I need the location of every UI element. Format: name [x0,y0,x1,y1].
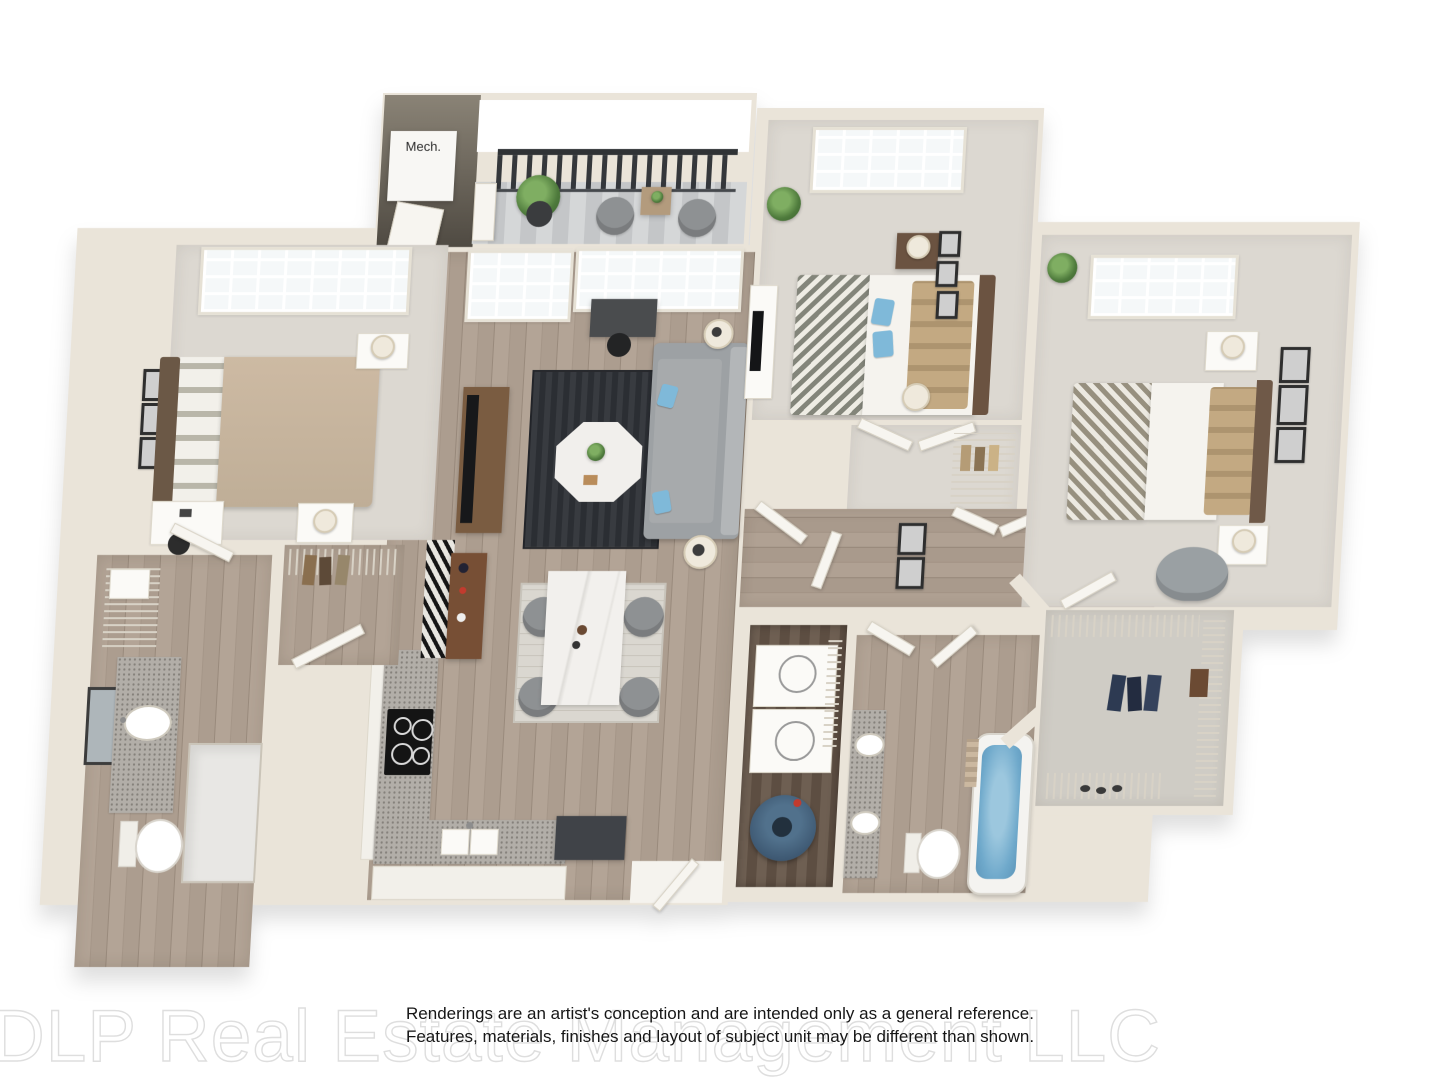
coffee-table-tray [583,475,598,485]
hanging-clothes-icon [319,557,331,586]
bedroom3-bed-blanket [1066,383,1152,520]
disclaimer-line1: Renderings are an artist's conception an… [0,1003,1440,1026]
kitchen-sink-basin [440,829,469,855]
hanging-clothes-icon [960,445,971,471]
closet-wire-shelf [1046,773,1165,799]
dining-table [541,571,626,705]
balcony-door [472,183,497,241]
hanging-clothes-icon [1127,676,1142,711]
decor-icon [179,509,191,517]
wall-art-frame [897,523,927,555]
accent-chair [1155,547,1230,601]
master-bed-duvet [216,357,380,507]
storage-item-icon [1189,669,1209,697]
wall-art-frame [1274,427,1306,463]
throw-pillow [872,330,893,358]
entry-console [554,816,626,860]
bathtub-water [975,745,1022,879]
closet-wire-shelf [950,433,1016,511]
wall-art-frame [1279,347,1311,383]
wall-art-frame [895,557,925,589]
bedroom2-bed-blanket [790,275,870,415]
desk [589,299,657,337]
storage-bin [109,569,151,599]
wall-art-frame [935,261,958,287]
floor-plan: Mech. [29,85,1375,915]
bedroom2-window [809,127,967,193]
wall-art-frame [938,231,961,257]
shower [181,743,263,883]
balcony-open-sky [477,100,752,152]
closet-wire-shelf [1051,615,1200,637]
hanging-clothes-icon [974,447,985,471]
bedroom3-window [1087,255,1239,319]
wall-art-frame [935,291,959,319]
hanging-clothes-icon [988,445,999,471]
disclaimer: Renderings are an artist's conception an… [0,1003,1440,1048]
master-bedroom-window [198,247,413,315]
wall-art-frame [1277,385,1309,425]
throw-pillow [652,489,672,514]
disclaimer-line2: Features, materials, finishes and layout… [0,1026,1440,1049]
kitchen-sink-basin [469,829,498,855]
mechanical-closet: Mech. [387,131,457,201]
kitchen-lower-cabinets [371,866,567,900]
mech-room-label: Mech. [390,131,456,154]
patio-glass-door [464,250,574,322]
